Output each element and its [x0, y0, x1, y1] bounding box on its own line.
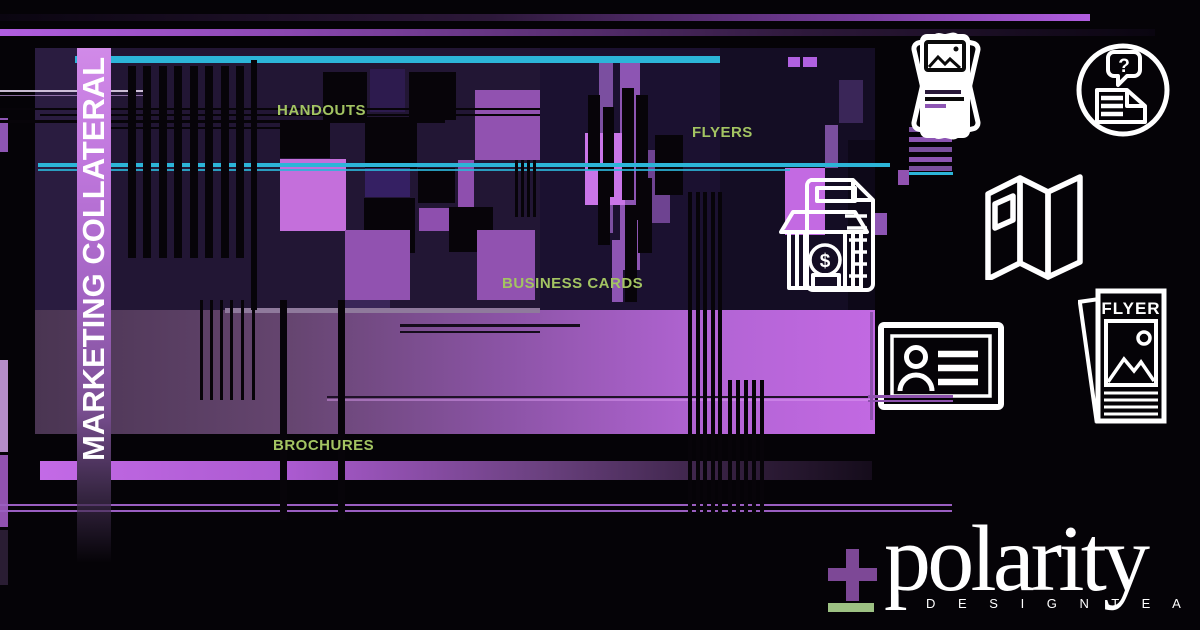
- marketing-collateral-banner: MARKETING COLLATERAL HANDOUTS FLYERS BUS…: [0, 0, 1200, 630]
- logo-plus-icon-arm: [828, 568, 877, 581]
- glitch-rect: [868, 395, 953, 398]
- glitch-rect: [868, 400, 953, 402]
- logo-underline-bar: [828, 603, 874, 612]
- logo-wordmark: polarity: [884, 512, 1146, 606]
- logo-subtitle: D E S I G N T E A M: [926, 596, 1200, 611]
- glitch-rect: [870, 312, 873, 420]
